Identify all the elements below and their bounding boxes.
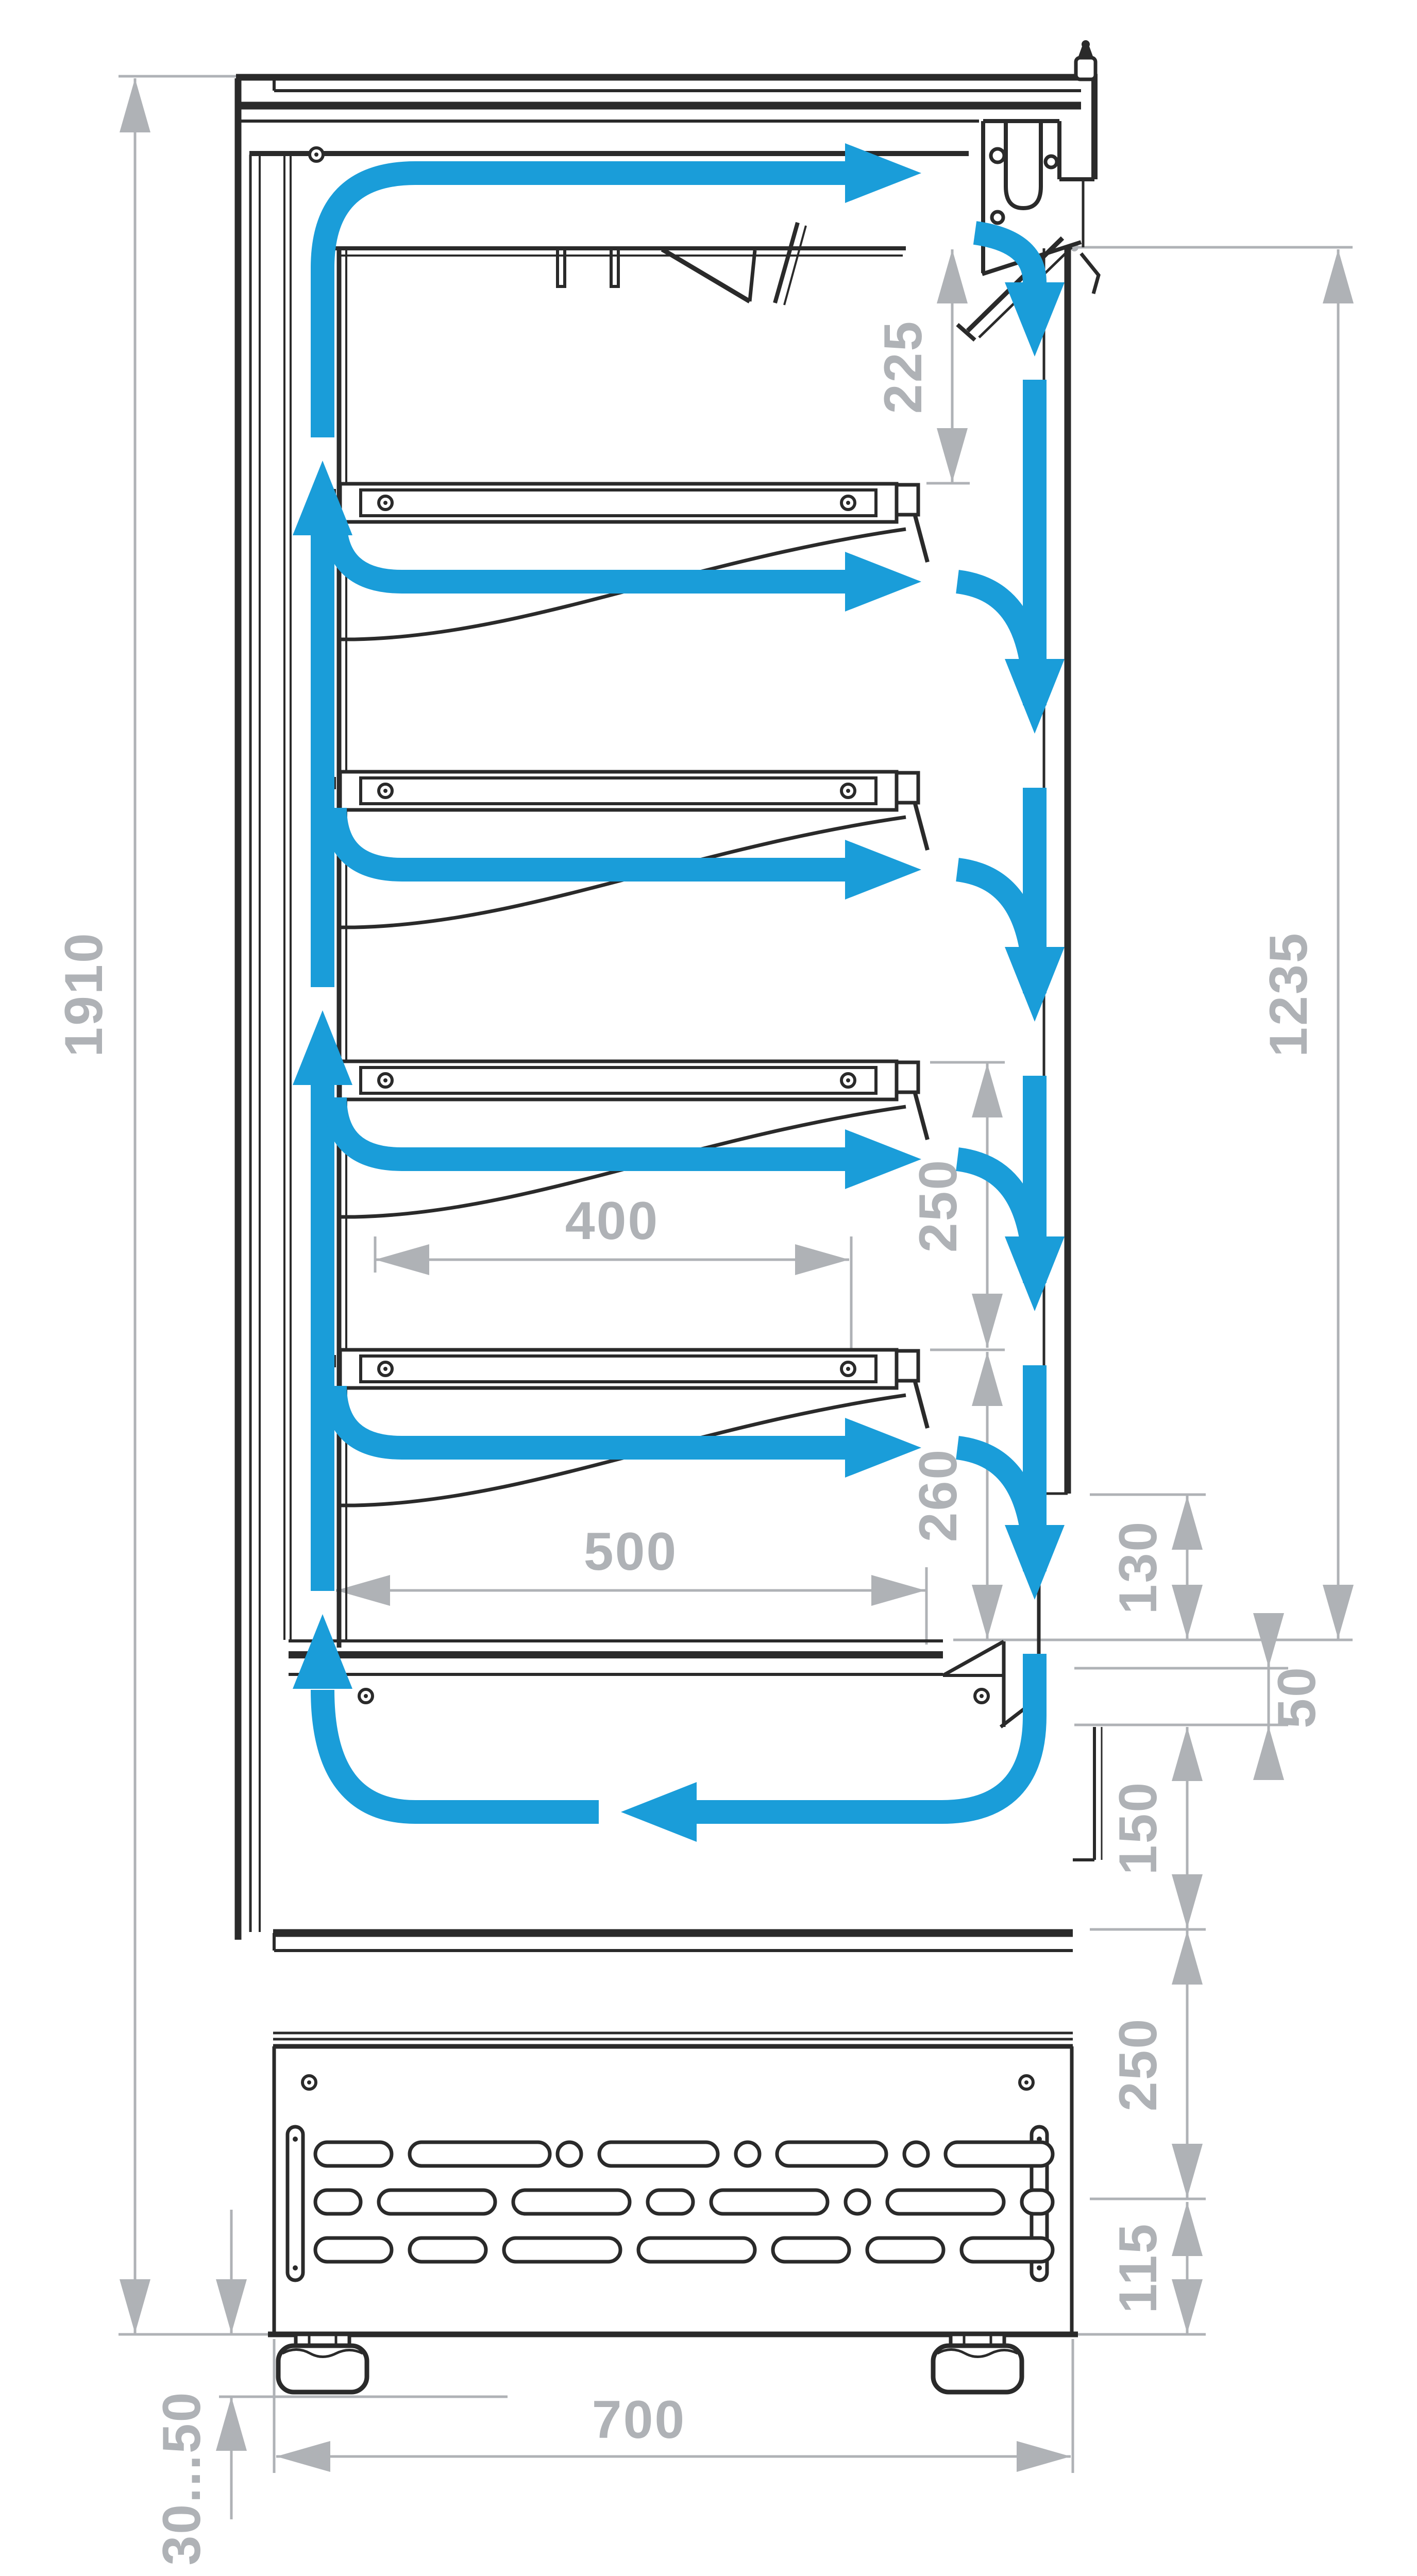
dimension-label: 1910 bbox=[54, 931, 114, 1057]
arrow-right-icon bbox=[845, 552, 921, 612]
cabinet-cross-section-diagram: 1910 225 1235 250 400 260 500 130 50 bbox=[0, 0, 1417, 2576]
airflow bbox=[293, 143, 1065, 1842]
dimension-1235: 1235 bbox=[1259, 249, 1354, 1639]
dimension-label: 30...50 bbox=[152, 2391, 212, 2565]
extension-lines bbox=[119, 76, 1353, 2473]
dimension-130: 130 bbox=[1108, 1496, 1203, 1639]
dimension-500: 500 bbox=[336, 1522, 925, 1606]
arrow-down-icon bbox=[1005, 282, 1065, 357]
dimension-400: 400 bbox=[375, 1191, 849, 1275]
arrow-down-icon bbox=[1005, 1236, 1065, 1311]
arrow-left-icon bbox=[621, 1782, 697, 1842]
shelf-2 bbox=[330, 772, 927, 927]
vent-grille bbox=[315, 2142, 1053, 2262]
dimension-label: 500 bbox=[584, 1522, 678, 1582]
dimension-50: 50 bbox=[1253, 1613, 1327, 1780]
arrow-right-icon bbox=[845, 840, 921, 900]
shelf-1 bbox=[330, 484, 927, 639]
dimension-30-50: 30...50 bbox=[152, 2210, 247, 2566]
dimension-label: 250 bbox=[1108, 2018, 1168, 2112]
dimension-label: 700 bbox=[592, 2390, 686, 2450]
deck-basin bbox=[273, 1641, 1073, 2046]
dimension-label: 130 bbox=[1108, 1520, 1168, 1615]
plinth bbox=[268, 2046, 1078, 2392]
dimension-150: 150 bbox=[1108, 1727, 1203, 1928]
dimension-225: 225 bbox=[873, 249, 968, 482]
dimension-label: 250 bbox=[908, 1159, 968, 1253]
dimension-label: 150 bbox=[1108, 1781, 1168, 1875]
evaporator-deflector bbox=[558, 223, 806, 305]
air-guide bbox=[1001, 1539, 1102, 1860]
dimension-label: 225 bbox=[873, 320, 933, 414]
dimension-label: 115 bbox=[1108, 2223, 1168, 2314]
dimension-250-shelf: 250 bbox=[908, 1063, 1003, 1348]
dimension-1910: 1910 bbox=[54, 78, 150, 2333]
arrow-down-icon bbox=[1005, 1525, 1065, 1600]
grille-handle-left bbox=[288, 2127, 303, 2280]
dimension-label: 50 bbox=[1267, 1666, 1327, 1728]
arrow-up-icon bbox=[293, 1010, 352, 1085]
arrow-down-icon bbox=[1005, 659, 1065, 734]
dimension-label: 1235 bbox=[1259, 931, 1319, 1057]
cabinet-structure bbox=[236, 40, 1102, 2392]
shelf-4 bbox=[330, 1350, 927, 1505]
shelf-airflow-arrows bbox=[335, 520, 1035, 1571]
dimension-250-plinth: 250 bbox=[1108, 1930, 1203, 2198]
dimension-260: 260 bbox=[908, 1352, 1003, 1639]
dimension-label: 400 bbox=[565, 1191, 660, 1251]
foot-right bbox=[933, 2334, 1022, 2392]
arrow-down-icon bbox=[1005, 947, 1065, 1022]
foot-left bbox=[278, 2334, 367, 2392]
front-glass bbox=[1044, 247, 1068, 1494]
dimension-700: 700 bbox=[276, 2390, 1071, 2472]
shelves bbox=[330, 484, 927, 1505]
dimension-label: 260 bbox=[908, 1448, 968, 1543]
dimension-115: 115 bbox=[1108, 2202, 1203, 2333]
return-airflow bbox=[323, 1654, 1035, 1842]
